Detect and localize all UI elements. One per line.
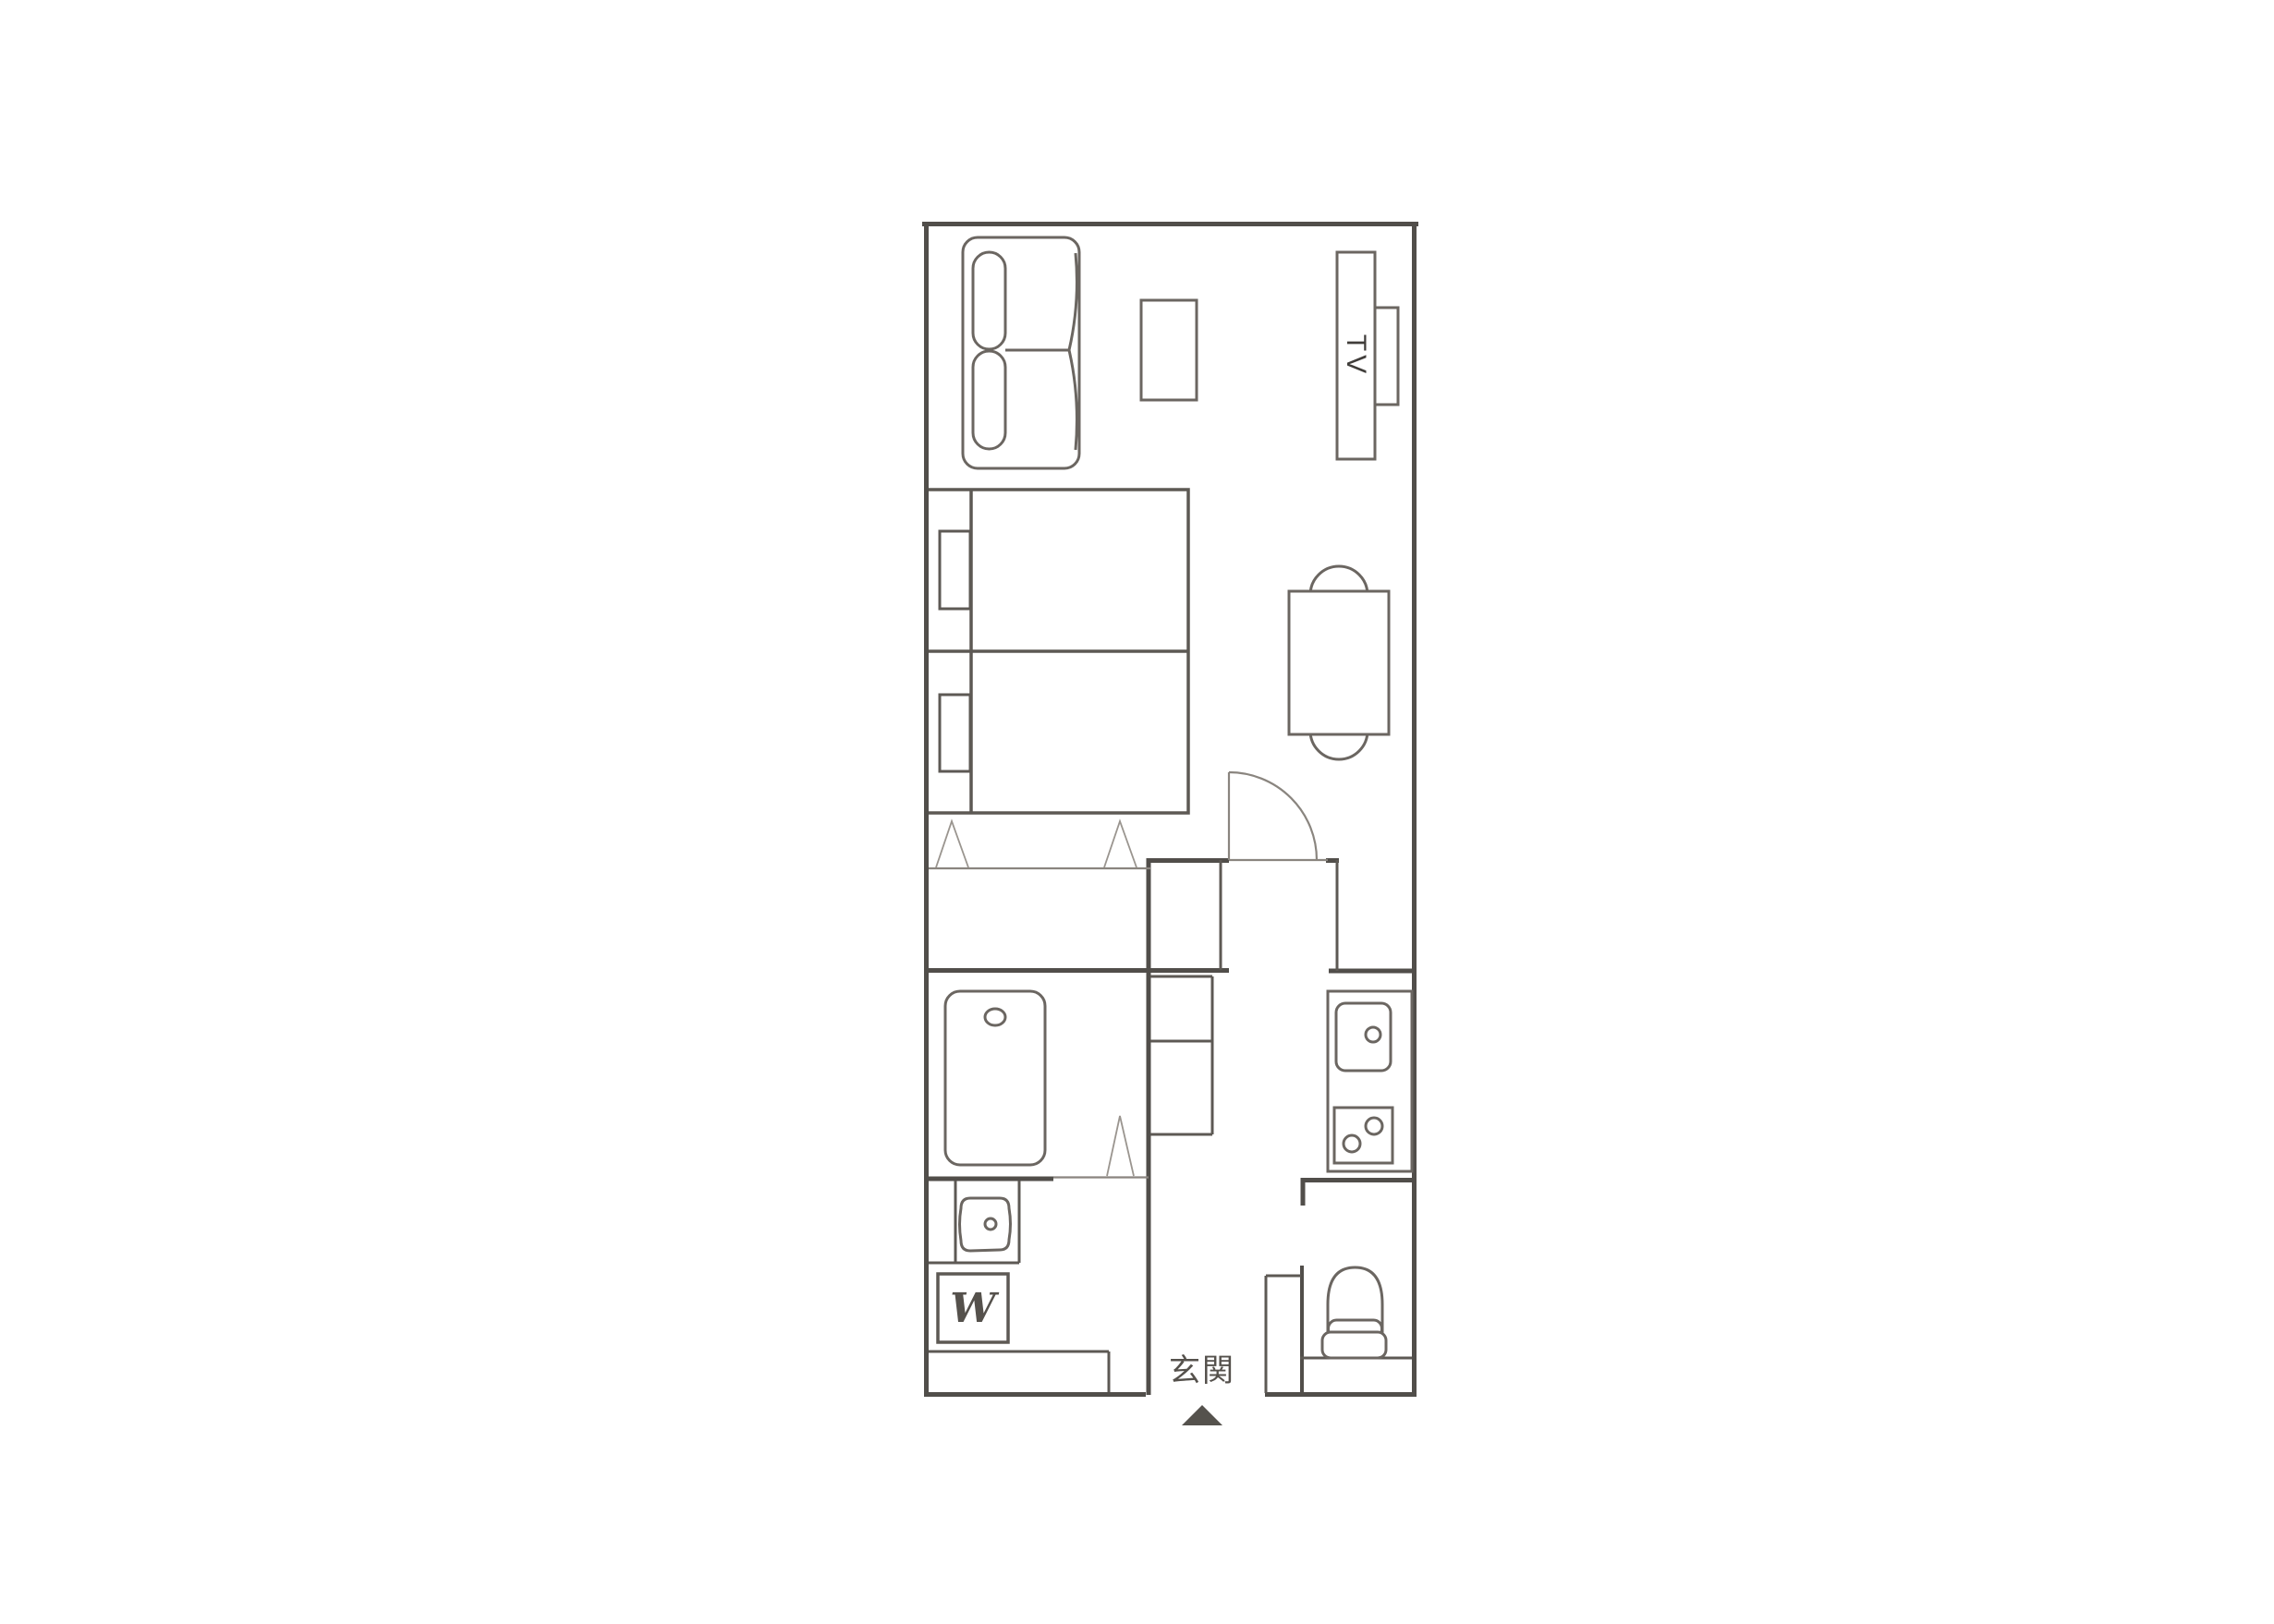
- stove: [1334, 1108, 1392, 1163]
- entrance-arrow-icon: [1182, 1405, 1222, 1425]
- kitchen: [1328, 991, 1412, 1171]
- entrance-label-text: 玄関: [1169, 1345, 1235, 1390]
- coffee-table: [1141, 300, 1197, 400]
- sofa-cushion-1: [973, 252, 1005, 349]
- entrance-step: [929, 1351, 1109, 1392]
- nightstand-1: [940, 531, 970, 609]
- toilet: [1322, 1267, 1386, 1358]
- washbasin: [960, 1198, 1011, 1251]
- washing-machine-label: W: [938, 1274, 1008, 1342]
- dining-set: [1289, 566, 1389, 759]
- bathroom: [945, 991, 1045, 1165]
- floor-plan: TV W 玄関: [0, 0, 2274, 1624]
- sofa: [963, 237, 1079, 468]
- fold-door-icon: [1104, 821, 1137, 867]
- bathtub: [945, 991, 1045, 1165]
- dining-table: [1289, 591, 1389, 734]
- vanity-cabinets: [1150, 976, 1212, 1134]
- entry-partition: [1266, 1276, 1301, 1393]
- tv-set: [1375, 308, 1398, 405]
- washing-machine-label-text: W: [950, 1285, 995, 1332]
- fold-door-icon: [1107, 1116, 1134, 1176]
- tv-label: TV: [1337, 252, 1375, 459]
- fold-door-icon: [936, 821, 968, 867]
- door-swing-arc: [1229, 772, 1317, 860]
- twin-beds: [929, 490, 1188, 813]
- floor-plan-svg: [0, 0, 2274, 1624]
- sofa-cushion-2: [973, 351, 1005, 449]
- entrance-label: 玄関: [1142, 1347, 1262, 1388]
- nightstand-2: [940, 695, 970, 771]
- tv-label-text: TV: [1341, 334, 1372, 377]
- toilet-tank: [1322, 1332, 1386, 1358]
- kitchen-sink: [1336, 1003, 1391, 1071]
- room-door: [1229, 772, 1317, 860]
